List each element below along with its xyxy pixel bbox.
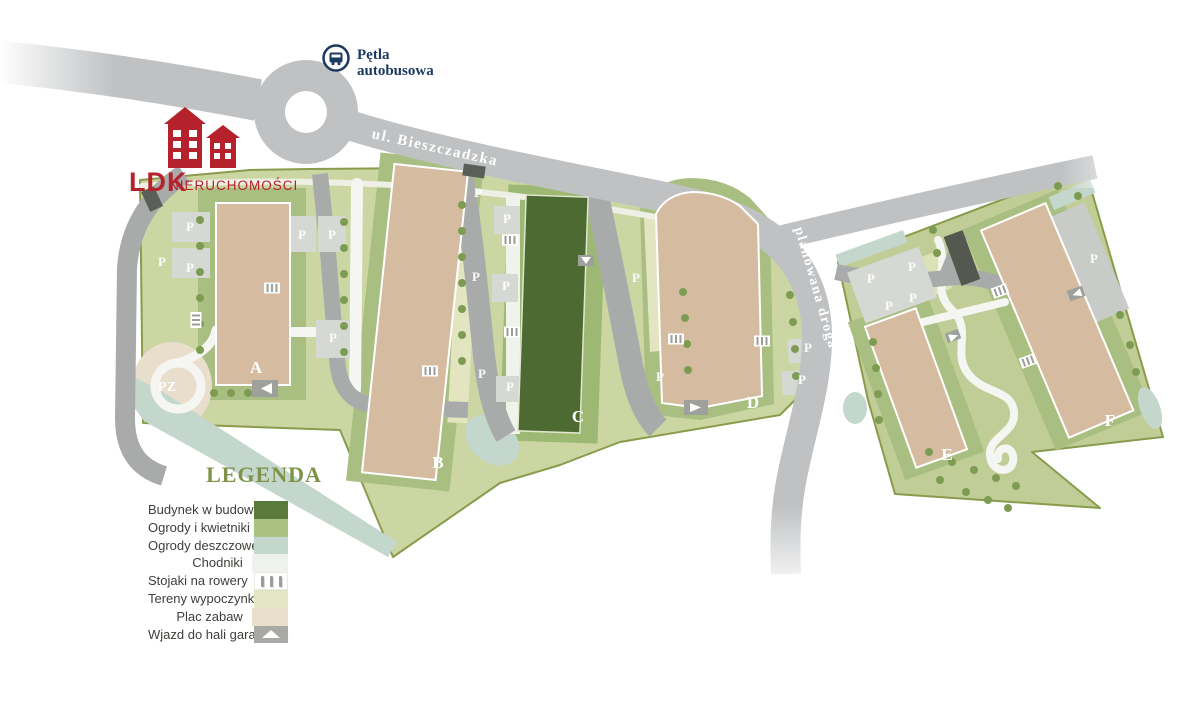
legend-item: Plac zabaw	[148, 608, 288, 626]
parking-marker: P	[328, 227, 336, 242]
site-plan-page: P P P P P P P P P P P P P P P P P P P P …	[0, 0, 1191, 701]
garage-entrance-icon	[684, 400, 708, 415]
bus-loop-label-line2: autobusowa	[357, 63, 434, 79]
parking-marker: P	[804, 340, 812, 355]
parking-marker: P	[908, 259, 916, 274]
legend-item-label: Plac zabaw	[148, 608, 252, 626]
building-f-label: F	[1105, 411, 1115, 430]
parking-marker: P	[472, 269, 480, 284]
parking-marker: P	[478, 366, 486, 381]
legend-swatch-bike-racks-icon	[254, 572, 288, 590]
legend-item: Ogrody deszczowe	[148, 537, 288, 555]
legend-item-label: Ogrody deszczowe	[148, 537, 254, 555]
parking-marker: P	[186, 260, 194, 275]
bus-loop-label-line1: Pętla	[357, 47, 390, 63]
roundabout	[254, 60, 358, 164]
legend-swatch-walkways	[252, 554, 288, 572]
legend-item-label: Ogrody i kwietniki	[148, 519, 254, 537]
road-fade-left	[0, 28, 115, 158]
parking-marker: P	[186, 219, 194, 234]
buildings-icon	[164, 107, 240, 168]
legend-swatch-gardens	[254, 519, 288, 537]
legend-swatch-building-under-construction	[254, 501, 288, 519]
building-e-label: E	[941, 445, 952, 464]
building-c-under-construction	[518, 195, 588, 433]
legend-swatch-garage-entrance-icon	[254, 626, 288, 644]
parking-marker: P	[474, 185, 482, 200]
parking-marker: P	[502, 278, 510, 293]
parking-marker: P	[1090, 251, 1098, 266]
building-b-label: B	[432, 453, 443, 472]
road-fade-right	[1060, 128, 1150, 188]
legend-item-label: Chodniki	[148, 554, 252, 572]
legend-item-label: Budynek w budowie	[148, 501, 254, 519]
parking-marker: P	[298, 227, 306, 242]
legend-item: Budynek w budowie	[148, 501, 288, 519]
legend-item-label: Tereny wypoczynkowe	[148, 590, 254, 608]
legend-item: Ogrody i kwietniki	[148, 519, 288, 537]
parking-marker: P	[329, 330, 337, 345]
playground-label: PZ	[158, 380, 176, 395]
legend-swatch-rain-gardens	[254, 537, 288, 555]
legend-swatch-playground	[252, 608, 288, 626]
logo-suffix: NIERUCHOMOŚCI	[169, 178, 298, 193]
parking-marker: P	[506, 379, 514, 394]
legend-item: Wjazd do hali garażowej	[148, 626, 288, 644]
building-d	[656, 192, 762, 408]
legend-item-label: Wjazd do hali garażowej	[148, 626, 254, 644]
building-a-label: A	[250, 358, 263, 377]
parking-marker: P	[909, 290, 917, 305]
garage-entrance-icon	[252, 380, 278, 397]
parking-marker: P	[798, 372, 806, 387]
parking-marker: P	[656, 369, 664, 384]
parking-marker: P	[158, 254, 166, 269]
building-d-label: D	[747, 393, 759, 412]
legend-item: Chodniki	[148, 554, 288, 572]
legend-item: Stojaki na rowery	[148, 572, 288, 590]
road-fade-bottom	[755, 505, 825, 595]
parking-marker: P	[503, 211, 511, 226]
legend-item-label: Stojaki na rowery	[148, 572, 254, 590]
parking-marker: P	[867, 271, 875, 286]
legend-title: LEGENDA	[194, 462, 334, 488]
legend-swatch-leisure-areas	[254, 590, 288, 608]
garage-entrance-icon	[578, 255, 594, 266]
legend-item: Tereny wypoczynkowe	[148, 590, 288, 608]
parking-marker: P	[885, 298, 893, 313]
building-c-label: C	[572, 407, 584, 426]
parking-marker: P	[632, 270, 640, 285]
